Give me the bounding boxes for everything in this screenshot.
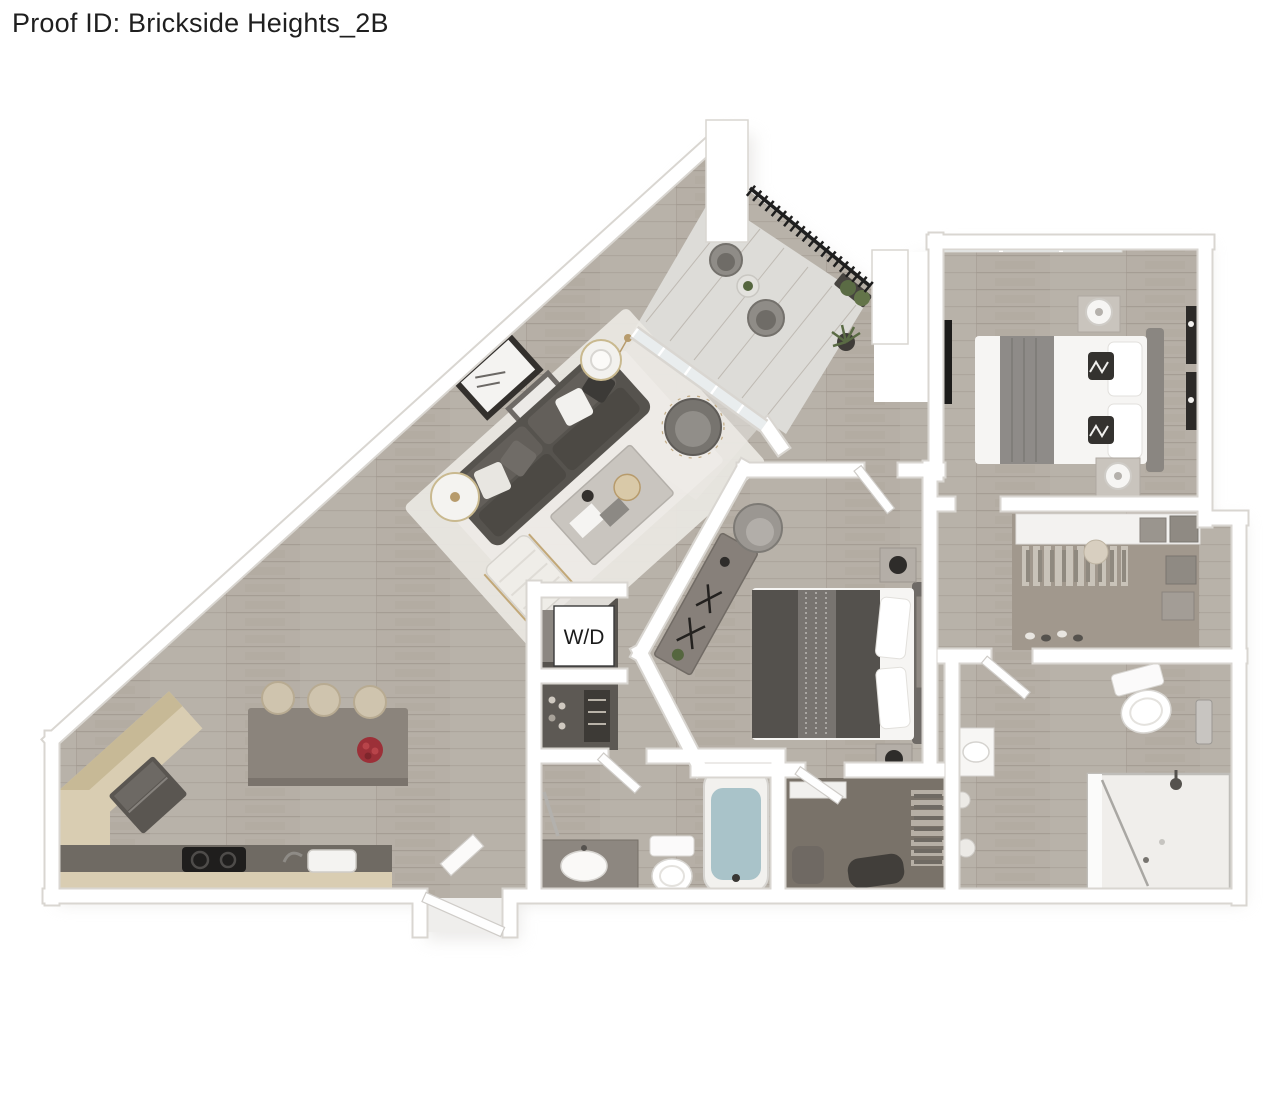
table-lamp-icon bbox=[591, 350, 611, 370]
bedroom2-chair bbox=[734, 504, 782, 552]
bath1-vanity bbox=[540, 840, 638, 892]
storage-box bbox=[1166, 556, 1196, 584]
storage-box bbox=[1140, 518, 1166, 542]
tub-faucet-icon bbox=[732, 874, 740, 882]
bar-stool bbox=[262, 682, 294, 714]
floor-plan: W/D bbox=[0, 0, 1283, 1100]
table-lamp-icon bbox=[889, 556, 907, 574]
towel-rack bbox=[1196, 700, 1212, 744]
balcony-side-wall bbox=[872, 250, 908, 344]
sink bbox=[561, 851, 607, 881]
storage-box bbox=[1162, 592, 1194, 620]
washer-dryer-label: W/D bbox=[564, 626, 605, 649]
kitchen-island bbox=[248, 682, 408, 786]
bar-stool bbox=[354, 686, 386, 718]
hat-box bbox=[1084, 540, 1108, 564]
bed-primary bbox=[975, 328, 1164, 472]
sink bbox=[963, 742, 989, 762]
storage-box bbox=[1170, 516, 1198, 542]
apex-wall bbox=[706, 120, 748, 242]
nightstand bbox=[1096, 458, 1140, 496]
toilet bbox=[650, 836, 694, 893]
plant-icon bbox=[743, 281, 753, 291]
bar-stool bbox=[308, 684, 340, 716]
bed-secondary bbox=[752, 582, 930, 744]
shoe-rack bbox=[584, 690, 610, 742]
bath2-vanity bbox=[958, 728, 994, 776]
side-table bbox=[431, 473, 479, 521]
shower bbox=[1088, 770, 1230, 892]
fruit-bowl bbox=[357, 737, 383, 763]
screenshot-root: Proof ID: Brickside Heights_2B bbox=[0, 0, 1283, 1100]
cooktop bbox=[182, 847, 246, 872]
bathtub bbox=[704, 770, 768, 892]
bag bbox=[792, 846, 824, 884]
nightstand bbox=[1078, 296, 1120, 332]
nightstand bbox=[880, 548, 916, 582]
laundry-closet: W/D bbox=[542, 606, 614, 666]
